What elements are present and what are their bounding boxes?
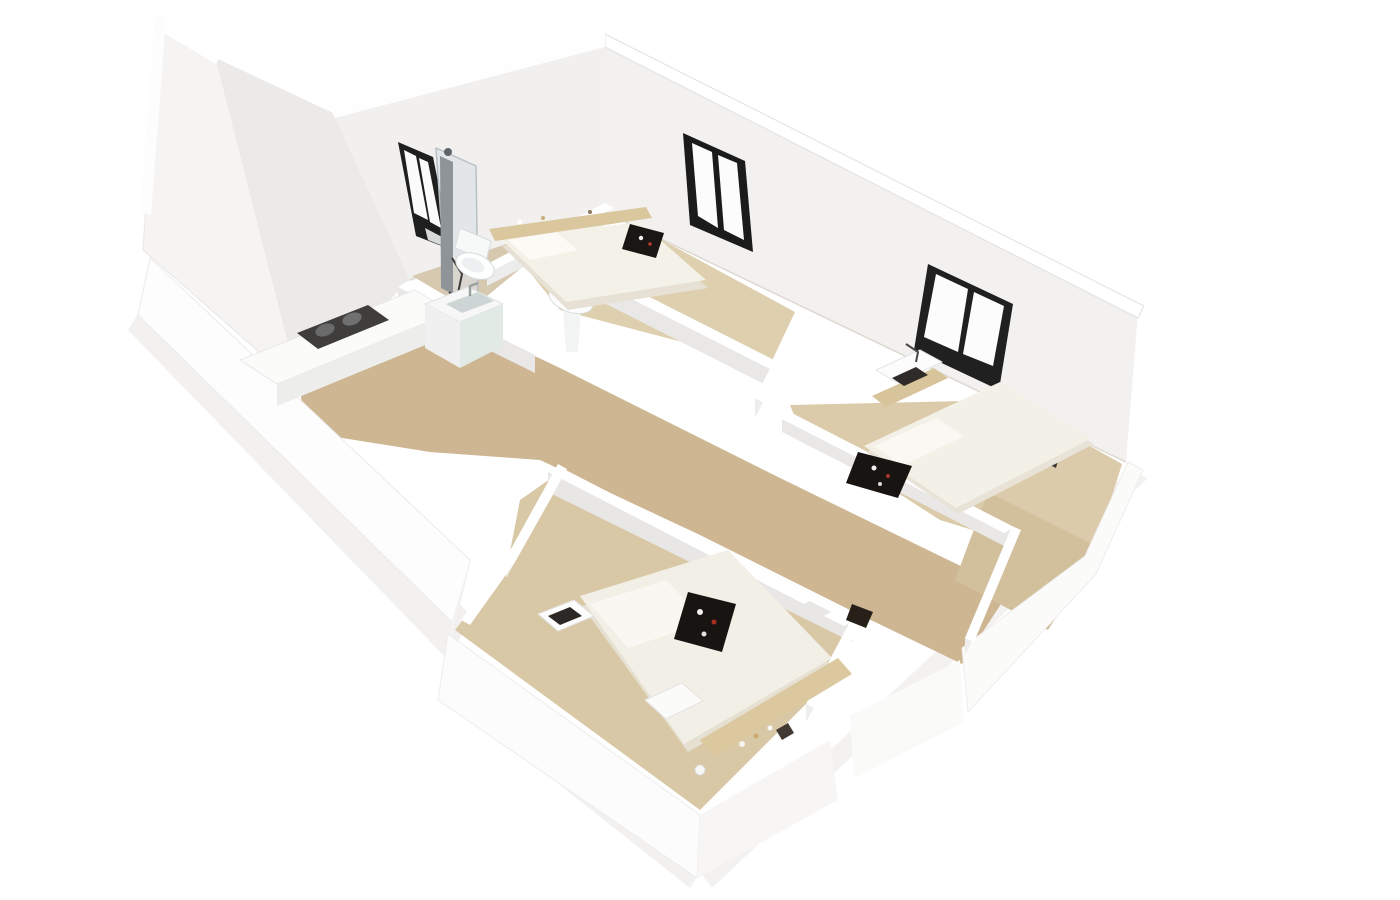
bed3-decor-3 <box>768 726 773 731</box>
bed1-decor-2 <box>541 216 545 220</box>
bed3-tray-dish <box>697 609 703 615</box>
bed1-tray-accent <box>648 242 652 246</box>
bed3-decor-1 <box>739 741 745 747</box>
bed3-tray-cup <box>702 632 707 637</box>
bed2-tray-dish <box>872 466 877 471</box>
bed1-decor-1 <box>518 220 523 225</box>
shower-column <box>440 156 453 294</box>
floor-plan-figure <box>0 0 1400 900</box>
bed2-tray-accent <box>886 474 890 478</box>
bed1-decor-4 <box>588 210 592 214</box>
bed3-tray-accent <box>712 620 717 625</box>
wall-hall-exit-band <box>850 660 964 778</box>
bed1-decor-3 <box>564 213 569 218</box>
shower-head <box>444 148 452 156</box>
floor-plan-3d-render <box>0 0 1400 900</box>
bedroom3-bedside-lamp <box>695 765 705 775</box>
wall-northeast-face <box>605 42 1138 462</box>
bed2-tray-cup <box>878 482 882 486</box>
bed1-tray-dish <box>639 236 643 240</box>
pedestal-sink-column <box>563 308 581 352</box>
bed3-decor-2 <box>754 734 759 739</box>
